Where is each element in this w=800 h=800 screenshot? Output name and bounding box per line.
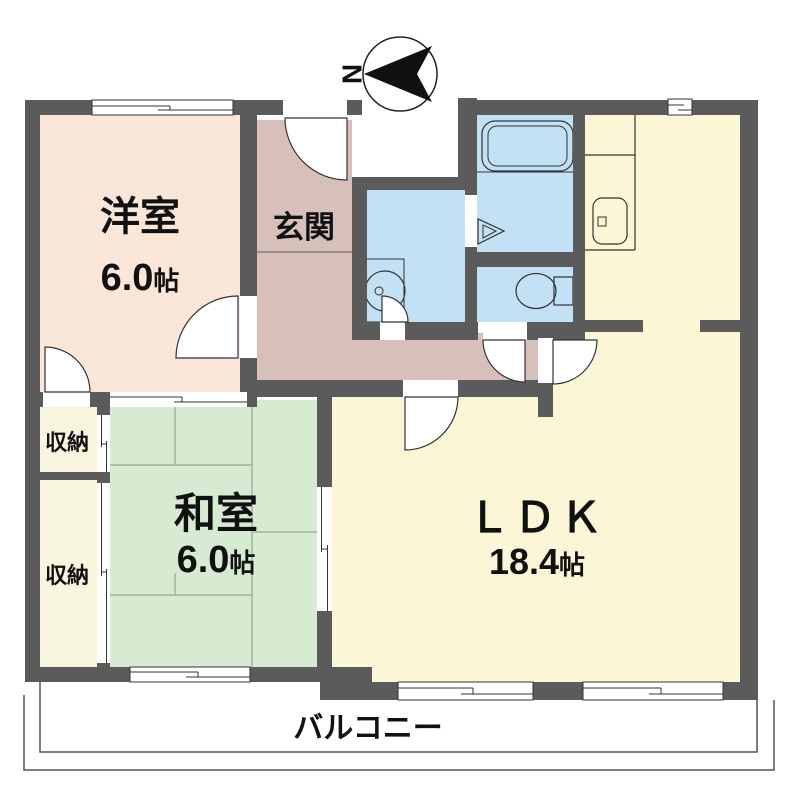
front-door-opening [283,100,347,115]
compass-north-label: N [337,64,368,84]
storage2-label: 収納 [45,563,89,588]
closet-door-opening [43,392,90,407]
floor-plan: N 洋室 6.0帖 玄関 和室 6.0帖 ＬＤＫ 18.4帖 収納 収納 バルコ… [0,0,800,800]
bathroom-door-opening [465,195,477,247]
floor-plan-svg: N 洋室 6.0帖 玄関 和室 6.0帖 ＬＤＫ 18.4帖 収納 収納 バルコ… [0,0,800,800]
japanese-room-label: 和室 [174,490,258,537]
washroom-door-opening [380,322,405,340]
hall-ldk-door-opening [538,338,553,383]
entrance-label: 玄関 [273,210,335,245]
western-room-area-value: 6.0 [101,257,154,299]
japanese-room-area-unit: 帖 [229,548,255,578]
hall-ldk-south-door-opening [403,380,458,397]
balcony-label: バルコニー [293,712,442,745]
room-floor-toilet [477,258,573,322]
ldk-area-value: 18.4 [489,541,559,582]
ldk-label: ＬＤＫ [468,494,606,541]
sliding-door-storage2 [97,483,110,663]
window-japanese-balcony [130,667,250,682]
room-floor-bathroom [477,115,573,258]
western-door-opening [240,296,257,358]
ldk-area-unit: 帖 [559,550,585,580]
japanese-room-area-value: 6.0 [177,539,230,581]
sliding-door-storage1 [97,415,110,472]
window-kitchen-top [668,99,692,115]
window-ldk-balcony-left [398,682,533,700]
window-ldk-balcony-right [583,682,723,700]
compass: N [337,37,438,111]
western-room-label: 洋室 [100,195,180,239]
toilet-door-opening [483,322,527,340]
storage1-label: 収納 [45,430,89,455]
room-floor-kitchen [585,115,740,332]
western-room-area-unit: 帖 [153,266,179,296]
sliding-door-japanese-ldk [317,487,332,611]
sliding-door-western-japanese [110,392,247,407]
window-western-top [92,100,233,115]
